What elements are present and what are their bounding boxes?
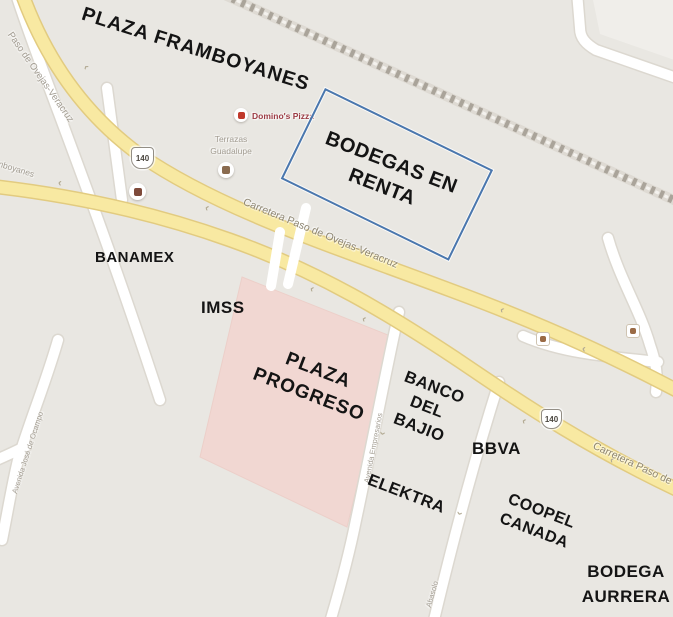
shop-poi-icon [536, 332, 550, 346]
dominos-pizza-label: Domino's Pizza [252, 111, 314, 121]
label-banamex: BANAMEX [95, 249, 174, 268]
bodega-aurrera-line1: BODEGA [580, 560, 672, 585]
highway-140-shield: 140 [541, 409, 562, 429]
label-imss: IMSS [201, 297, 245, 318]
cafe-poi-icon [218, 162, 234, 178]
terrazas-line1: Terrazas [206, 133, 256, 145]
highway-140-shield: 140 [131, 147, 154, 169]
shop-poi-icon [626, 324, 640, 338]
dominos-pizza-icon [234, 108, 248, 122]
terrazas-line2: Guadalupe [206, 145, 256, 157]
map-canvas: ‹ ‹ ‹ ‹ ‹ ‹ ‹ ‹ ‹ ‹ ‹ 140 140 Carretera … [0, 0, 673, 617]
label-bodega-aurrera: BODEGA AURRERA [580, 560, 672, 609]
label-bbva: BBVA [472, 438, 521, 459]
terrazas-guadalupe-label: Terrazas Guadalupe [206, 133, 256, 158]
store-poi-icon [129, 183, 146, 200]
bodega-aurrera-line2: AURRERA [580, 585, 672, 610]
